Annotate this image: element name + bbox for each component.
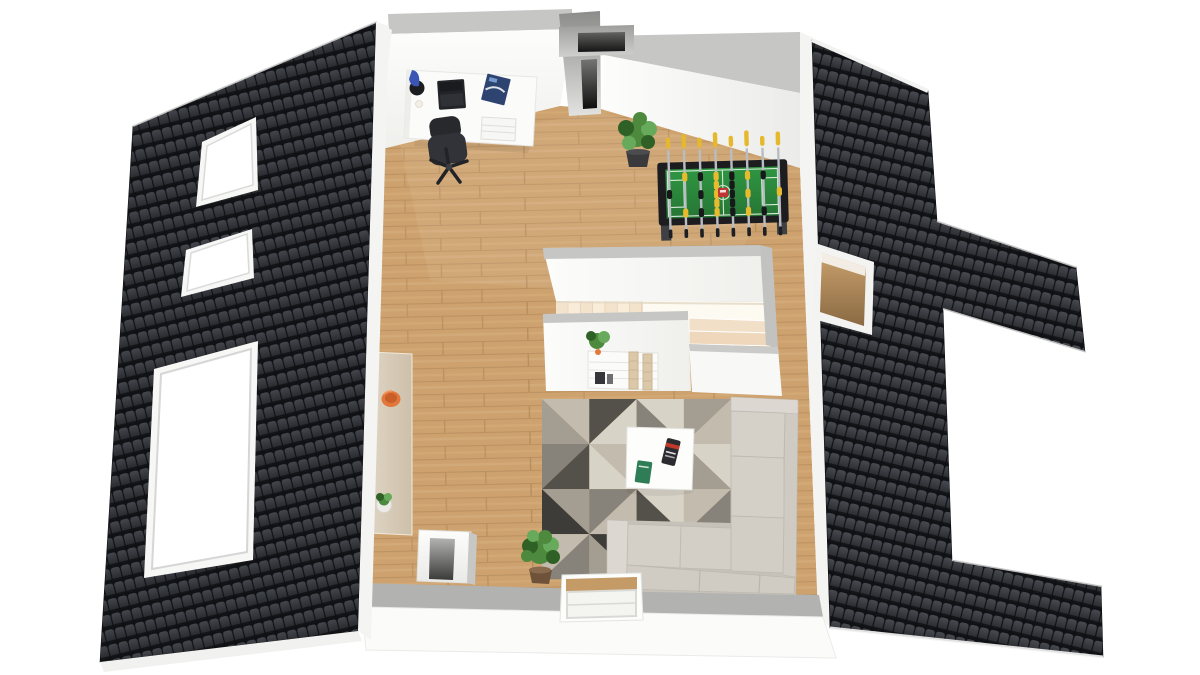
chimney-slot-horizontal xyxy=(578,32,625,52)
desk xyxy=(404,70,537,146)
skylight-glass xyxy=(152,349,251,569)
foosball-player xyxy=(698,172,703,181)
sofa-back-right xyxy=(783,413,798,577)
foosball-player xyxy=(667,190,672,199)
sofa-seat-1 xyxy=(731,411,785,458)
foosball-player xyxy=(777,187,782,196)
foosball-handle xyxy=(744,130,749,146)
foosball-player xyxy=(729,171,734,180)
skylight-large xyxy=(144,341,258,578)
table-book-green xyxy=(635,460,653,484)
sofa-seat-4 xyxy=(680,526,731,570)
foosball-rod-cap xyxy=(779,226,783,235)
foosball-rod-cap xyxy=(684,229,688,238)
foosball-player xyxy=(683,208,688,217)
drawer-unit xyxy=(481,117,516,141)
foosball-player xyxy=(730,198,735,207)
foosball-player xyxy=(746,207,751,216)
foosball-player xyxy=(713,172,718,181)
desk-small-dish xyxy=(416,101,423,108)
foosball-player xyxy=(760,170,765,179)
laptop xyxy=(437,79,466,110)
foosball-player xyxy=(714,199,719,208)
foosball-handle xyxy=(713,132,718,147)
sideboard-plant-leaf xyxy=(376,493,384,501)
stair-lower-step-1 xyxy=(689,318,771,333)
foosball-rod-cap xyxy=(716,228,720,237)
foosball-player xyxy=(698,190,703,199)
floorplan-render xyxy=(0,0,1200,675)
shelf-plant-leaf xyxy=(598,331,610,343)
foosball-player xyxy=(729,180,734,189)
sofa-seat-corner xyxy=(731,516,784,573)
chimney-slot-vertical xyxy=(581,59,597,109)
foosball-rod-cap xyxy=(747,227,751,236)
sofa-seat-3 xyxy=(627,524,681,568)
foosball-player xyxy=(714,208,719,217)
foosball-handle xyxy=(776,131,781,145)
chimney-low xyxy=(417,530,477,585)
floor-plant-pot-rim xyxy=(529,567,551,574)
floorplan-canvas xyxy=(0,0,1200,675)
foosball-handle xyxy=(666,137,671,148)
foosball-handle xyxy=(697,138,702,148)
shelf-books-dark xyxy=(595,372,605,384)
sofa-seat-2 xyxy=(731,456,784,518)
foosball-player xyxy=(745,189,750,198)
sideboard-plant-leaf xyxy=(384,493,392,501)
foosball-rod-cap xyxy=(763,227,767,236)
foosball-player xyxy=(730,207,735,216)
chair-stem xyxy=(446,164,452,170)
shelf-book-gray xyxy=(607,374,613,384)
foosball-handle xyxy=(760,136,765,146)
foosball-player xyxy=(745,171,750,180)
foosball-rod-cap xyxy=(700,229,704,238)
fruit-bowl-inner xyxy=(385,393,397,403)
shelf-orange-item xyxy=(595,349,601,355)
foosball-rod-cap xyxy=(731,228,735,237)
dormer-window xyxy=(560,573,643,622)
chimney-low-slot xyxy=(429,538,455,580)
foosball-handle xyxy=(681,134,686,148)
foosball-handle xyxy=(729,136,734,147)
shelf-plant-leaf xyxy=(586,331,596,341)
foosball-player xyxy=(682,172,687,181)
staircase xyxy=(543,245,782,396)
foosball-player xyxy=(761,206,766,215)
foosball-player xyxy=(699,208,704,217)
foosball-center-item-label xyxy=(720,190,726,193)
foosball-player xyxy=(730,189,735,198)
foosball-rod-cap xyxy=(669,229,673,238)
stair-lower-step-2 xyxy=(689,331,772,346)
coffee-table xyxy=(626,427,694,496)
